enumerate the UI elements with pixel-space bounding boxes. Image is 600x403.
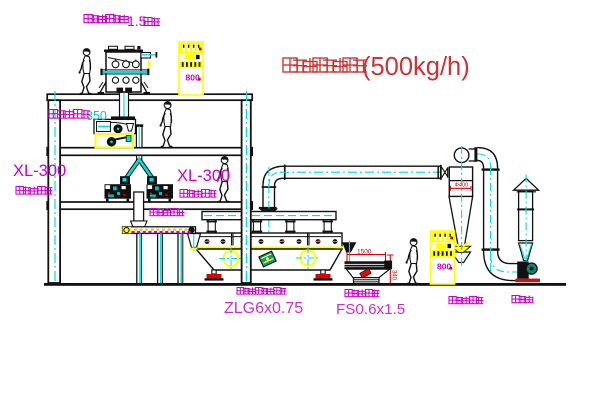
svg-text:350: 350: [86, 109, 107, 123]
svg-text:340: 340: [391, 270, 397, 281]
svg-text:ZLG6x0.75: ZLG6x0.75: [224, 300, 303, 317]
svg-text:(500kg/h): (500kg/h): [362, 53, 470, 81]
svg-text:800: 800: [437, 262, 451, 272]
svg-text:XL-300: XL-300: [13, 162, 66, 180]
svg-text:800: 800: [186, 73, 200, 83]
svg-text:1500: 1500: [357, 249, 372, 256]
svg-text:XL-300: XL-300: [177, 167, 230, 185]
svg-text:FS0.6x1.5: FS0.6x1.5: [336, 301, 405, 318]
